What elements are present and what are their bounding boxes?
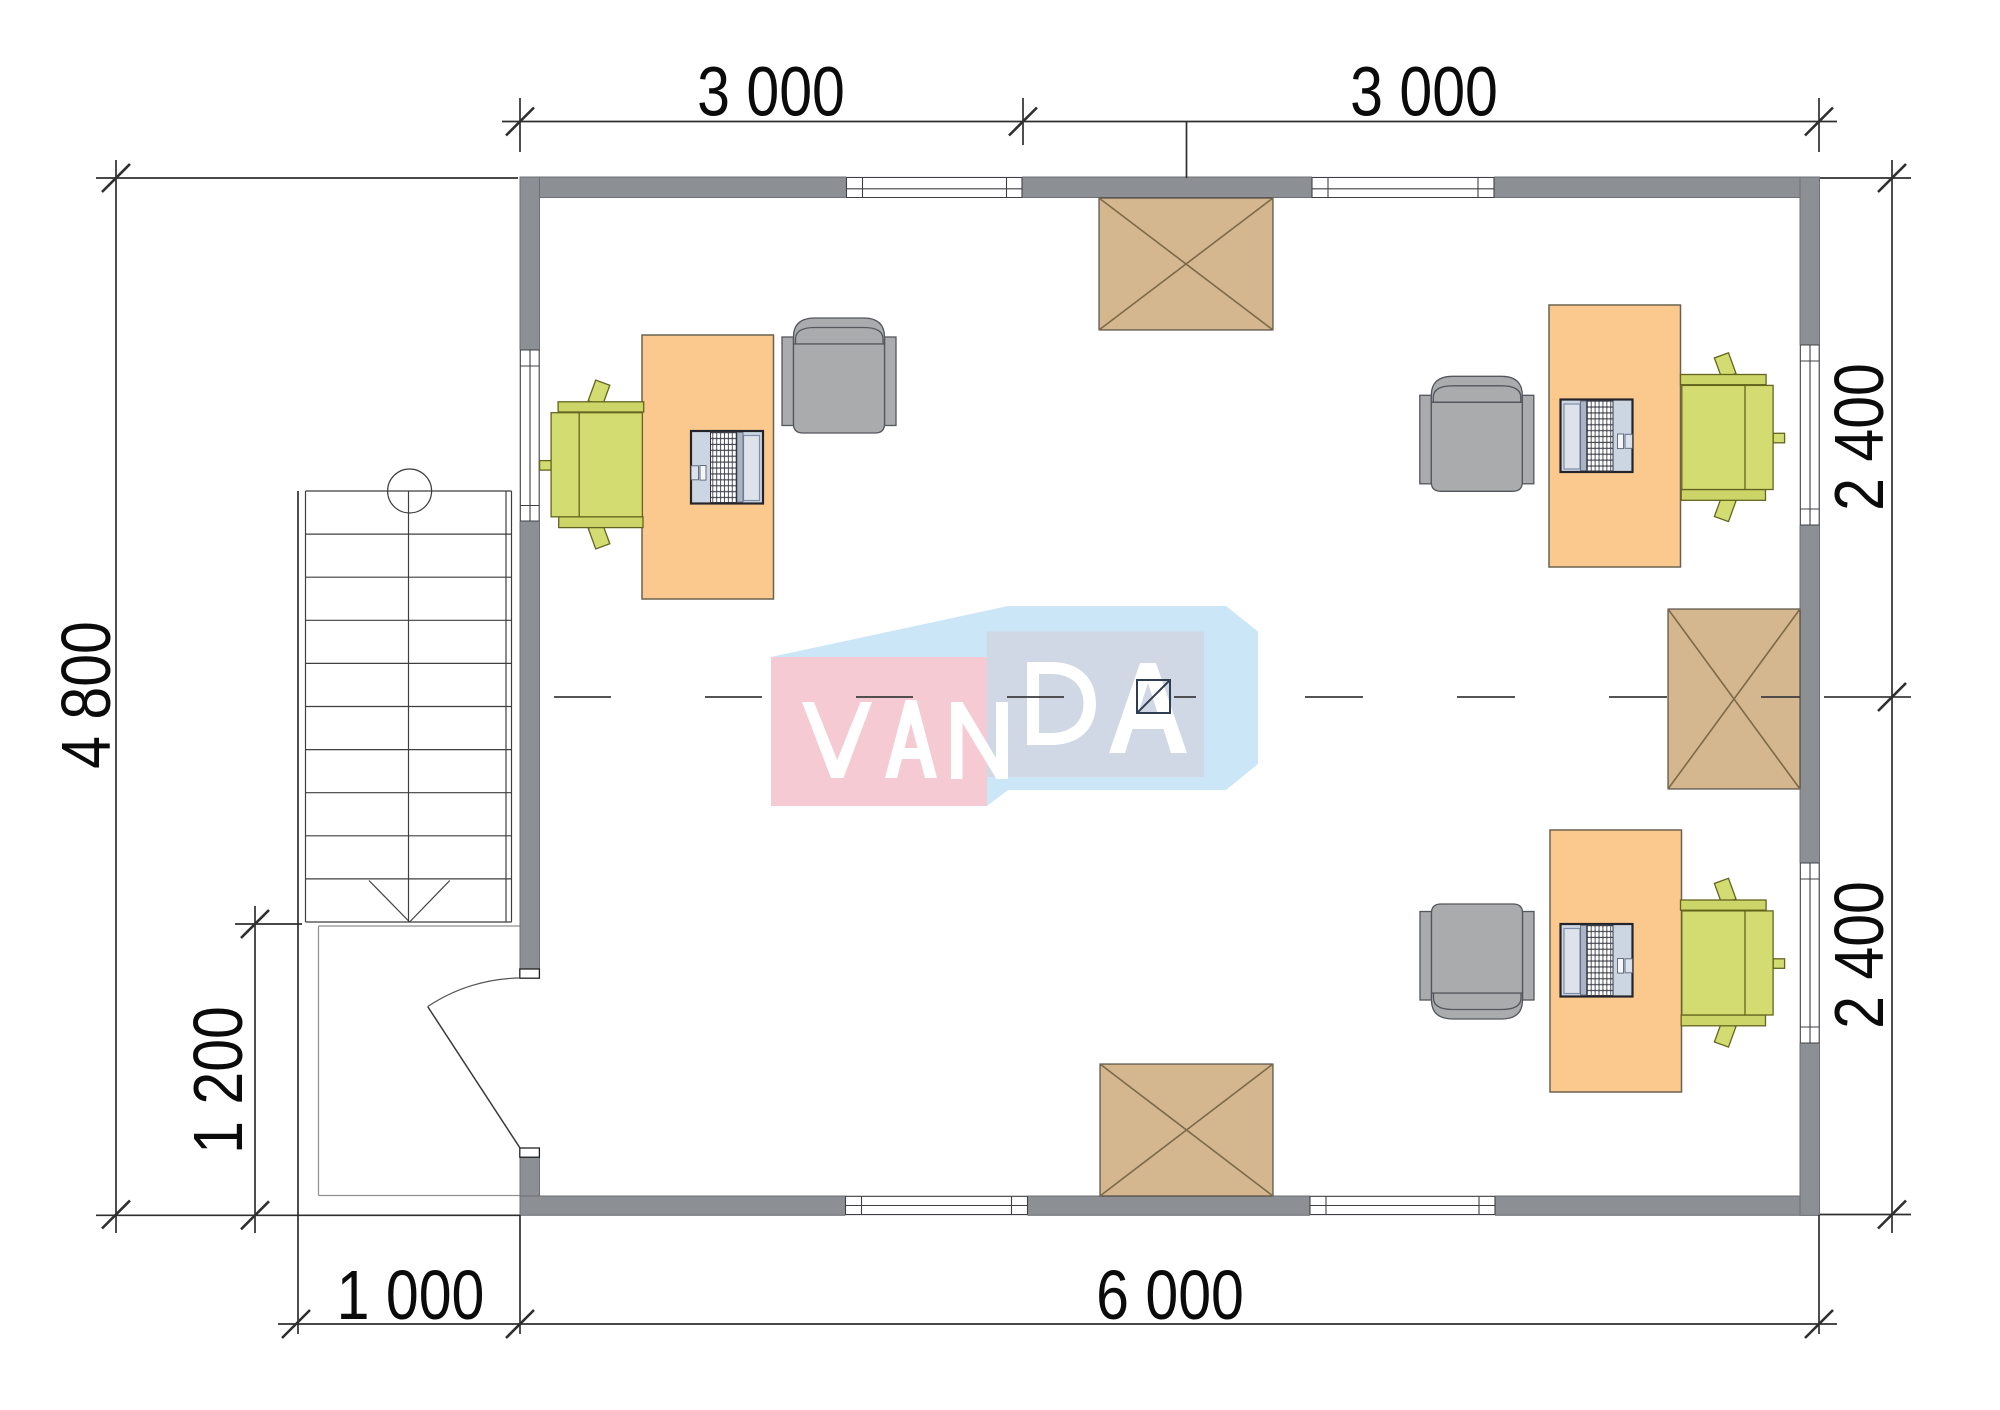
svg-text:3 000: 3 000 [697, 53, 845, 131]
svg-text:2 400: 2 400 [1821, 363, 1899, 511]
svg-text:2 400: 2 400 [1821, 881, 1899, 1029]
svg-text:6 000: 6 000 [1096, 1257, 1244, 1335]
svg-text:4 800: 4 800 [48, 621, 126, 769]
svg-text:1 000: 1 000 [337, 1257, 485, 1335]
svg-text:3 000: 3 000 [1350, 53, 1498, 131]
svg-text:1 200: 1 200 [180, 1006, 258, 1154]
